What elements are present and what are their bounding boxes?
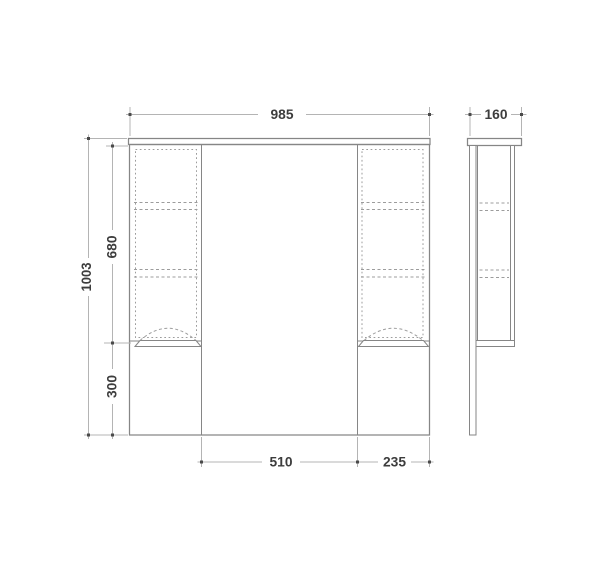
dim-tick xyxy=(129,113,132,116)
side-box-bottom-panel xyxy=(476,341,515,347)
side-view xyxy=(468,139,522,436)
dim-tick xyxy=(428,461,431,464)
dim-tick xyxy=(111,145,114,148)
side-mirror-panel xyxy=(470,146,477,436)
dim-tick xyxy=(356,461,359,464)
front-left-tray xyxy=(135,341,201,347)
front-right-dome-arc xyxy=(364,328,423,340)
dim-tick xyxy=(200,461,203,464)
side-top-cap xyxy=(468,139,522,146)
dim-center-width-label: 510 xyxy=(270,455,293,470)
dim-right-width-label: 235 xyxy=(383,455,406,470)
front-body-outline xyxy=(130,145,430,436)
dimensions: 985 160 1003 680 xyxy=(79,107,527,470)
dim-depth-label: 160 xyxy=(485,107,508,122)
dim-tick xyxy=(87,137,90,140)
dim-lower-height-label: 300 xyxy=(105,375,120,398)
dim-tick xyxy=(111,434,114,437)
front-left-dome-arc xyxy=(140,328,196,340)
dim-tick xyxy=(520,113,523,116)
mirror-cabinet-drawing: 985 160 1003 680 xyxy=(0,0,600,579)
side-box-front-wall xyxy=(511,146,515,347)
dim-tick xyxy=(428,113,431,116)
dim-tick xyxy=(111,342,114,345)
front-right-door-hidden-outline xyxy=(362,150,423,338)
front-view xyxy=(129,139,431,436)
technical-drawing-canvas: 985 160 1003 680 xyxy=(0,0,600,579)
dim-total-height-label: 1003 xyxy=(79,262,94,291)
dim-tick xyxy=(87,434,90,437)
front-right-tray xyxy=(359,341,429,347)
dim-tick xyxy=(469,113,472,116)
front-top-cap xyxy=(129,139,431,145)
dim-upper-height-label: 680 xyxy=(105,236,120,259)
dim-front-width-label: 985 xyxy=(271,107,294,122)
front-left-door-hidden-outline xyxy=(136,150,197,338)
